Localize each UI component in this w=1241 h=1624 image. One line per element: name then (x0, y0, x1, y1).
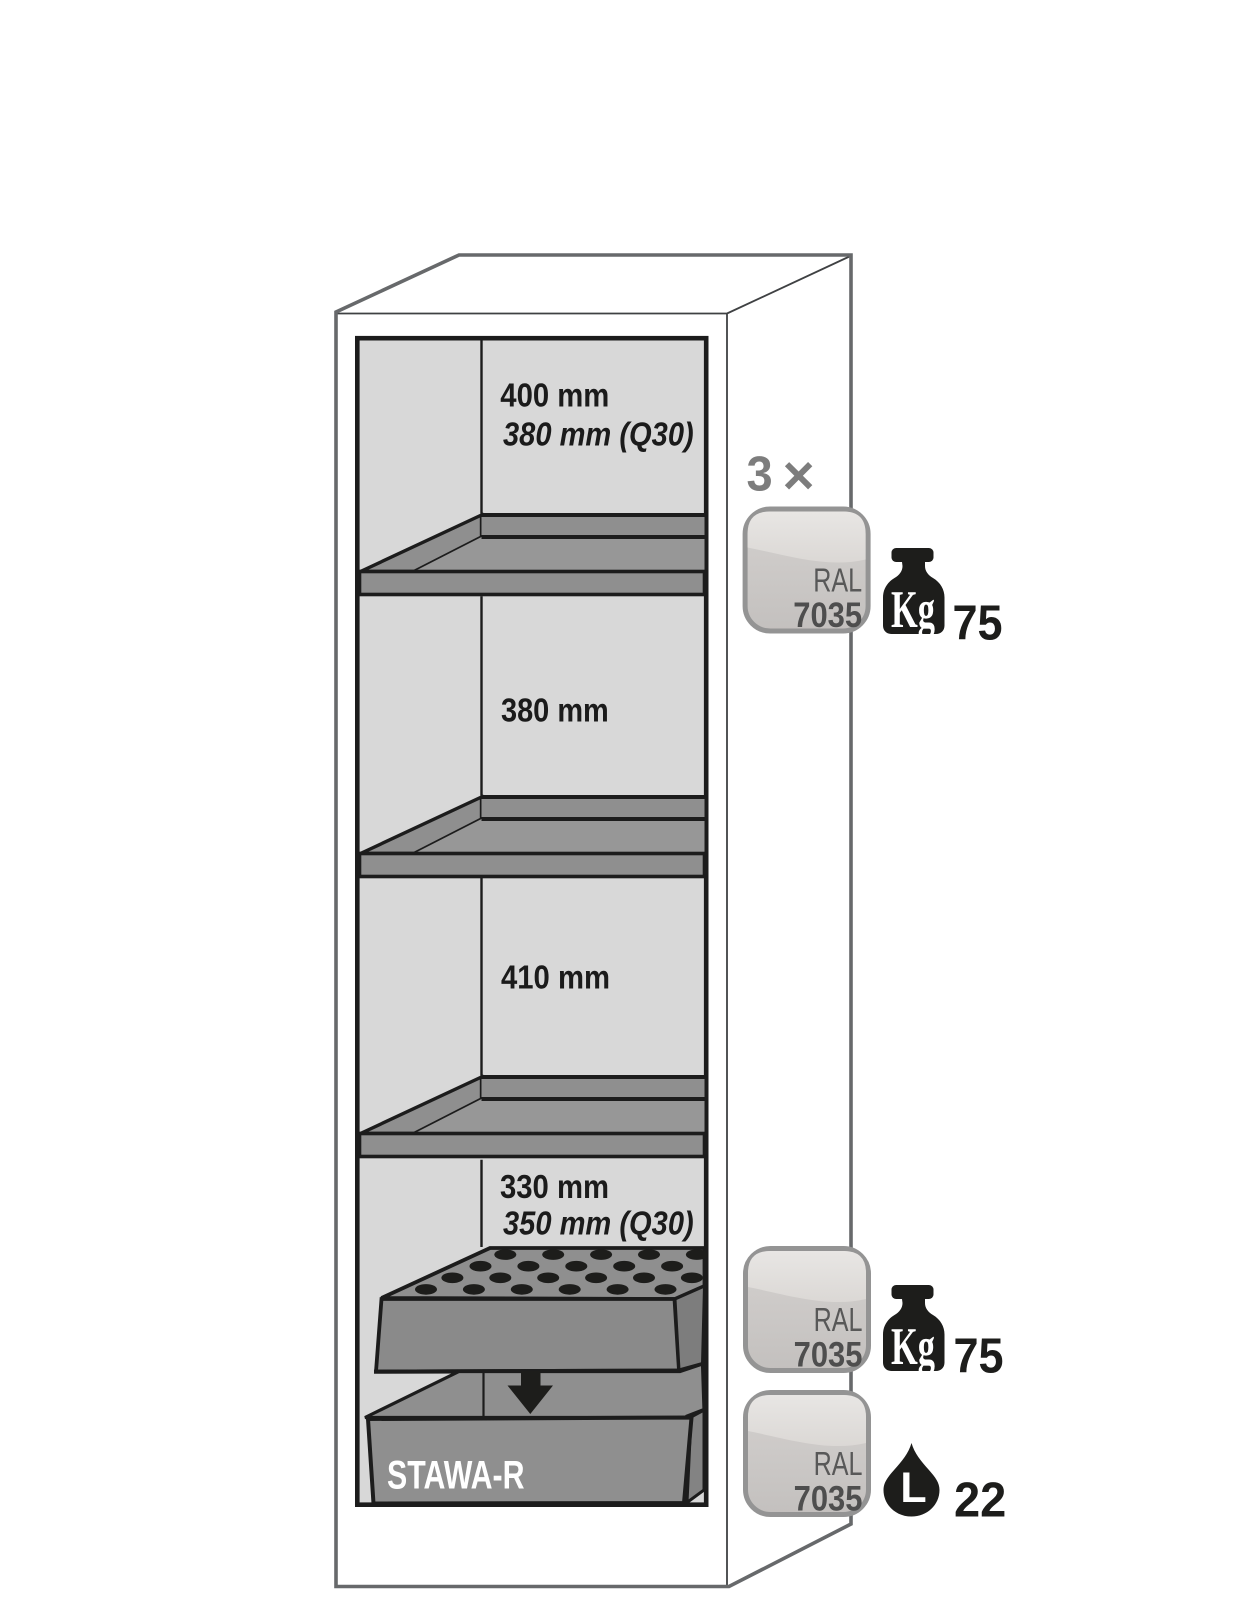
svg-text:330 mm: 330 mm (500, 1168, 609, 1205)
svg-text:×: × (783, 444, 815, 506)
svg-text:22: 22 (954, 1473, 1006, 1528)
svg-text:75: 75 (953, 596, 1003, 651)
svg-text:400 mm: 400 mm (500, 377, 609, 414)
svg-text:350 mm (Q30): 350 mm (Q30) (503, 1205, 694, 1242)
svg-text:380 mm: 380 mm (501, 692, 609, 729)
svg-text:3: 3 (747, 446, 773, 501)
svg-text:75: 75 (954, 1328, 1004, 1383)
svg-text:380 mm (Q30): 380 mm (Q30) (503, 416, 694, 453)
svg-text:410 mm: 410 mm (501, 959, 610, 996)
svg-text:L: L (900, 1464, 926, 1512)
svg-text:STAWA-R: STAWA-R (387, 1452, 525, 1497)
